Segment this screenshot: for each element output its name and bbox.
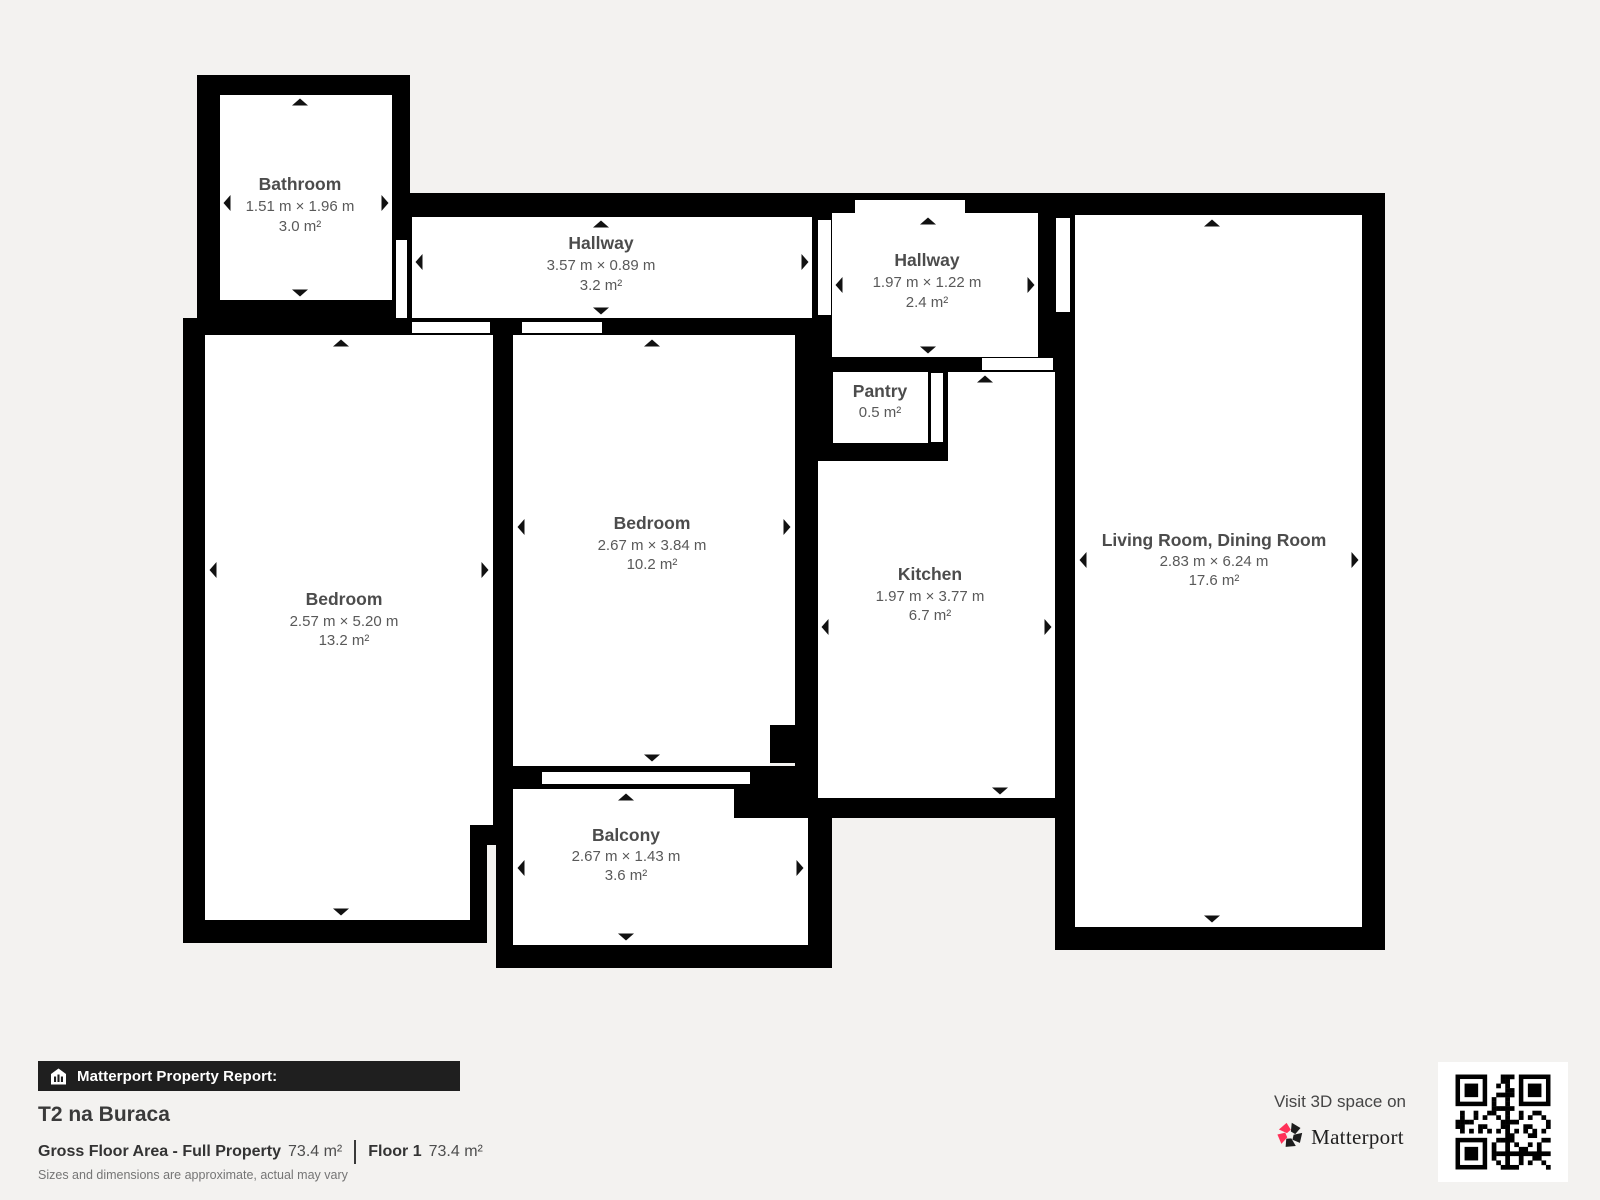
room-dimensions: 1.97 m × 1.22 m	[873, 274, 982, 291]
room-name: Bedroom	[306, 589, 383, 609]
room-dimensions: 2.57 m × 5.20 m	[290, 613, 399, 630]
room-area: 17.6 m²	[1189, 572, 1240, 589]
wall	[470, 825, 496, 845]
room-area: 10.2 m²	[627, 556, 678, 573]
wall	[493, 318, 513, 845]
room-area: 3.2 m²	[580, 277, 623, 294]
room-area: 2.4 m²	[906, 294, 949, 311]
promo-block: Visit 3D space on Matterport	[1255, 1092, 1425, 1154]
room-area: 13.2 m²	[319, 632, 370, 649]
room-name: Bathroom	[259, 174, 342, 194]
matterport-logo-icon	[1276, 1121, 1304, 1154]
room-area: 3.0 m²	[279, 218, 322, 235]
room-area: 3.6 m²	[605, 867, 648, 884]
matterport-wordmark: Matterport	[1311, 1125, 1404, 1150]
room-area: 0.5 m²	[859, 404, 902, 421]
wall	[496, 945, 832, 968]
window-opening	[542, 772, 750, 784]
room-name: Bedroom	[614, 513, 691, 533]
room-dimensions: 1.51 m × 1.96 m	[246, 198, 355, 215]
room-dimensions: 2.67 m × 1.43 m	[572, 848, 681, 865]
room-area: 6.7 m²	[909, 607, 952, 624]
door-opening	[855, 200, 965, 213]
door-opening	[931, 373, 943, 442]
qr-code	[1451, 1070, 1555, 1174]
room-dimensions: 3.57 m × 0.89 m	[547, 257, 656, 274]
room-name: Kitchen	[898, 564, 962, 584]
visit-3d-text: Visit 3D space on	[1255, 1092, 1425, 1112]
room-name: Living Room, Dining Room	[1102, 530, 1327, 550]
disclaimer-text: Sizes and dimensions are approximate, ac…	[38, 1168, 348, 1182]
property-title: T2 na Buraca	[38, 1103, 170, 1127]
wall	[183, 920, 487, 943]
wall	[770, 725, 818, 763]
matterport-brand: Matterport	[1255, 1121, 1425, 1154]
gross-floor-area-value: 73.4 m²	[288, 1143, 342, 1161]
wall	[1058, 927, 1385, 950]
door-opening	[818, 220, 831, 315]
wall	[1037, 193, 1385, 215]
floorplan: Bathroom 1.51 m × 1.96 m 3.0 m² Hallway …	[0, 0, 1600, 1010]
wall	[808, 798, 832, 968]
door-opening	[982, 358, 1053, 370]
wall	[496, 766, 513, 968]
property-report-page: Bathroom 1.51 m × 1.96 m 3.0 m² Hallway …	[0, 0, 1600, 1200]
wall	[734, 789, 832, 818]
wall	[1055, 372, 1075, 950]
room-name: Balcony	[592, 825, 660, 845]
room-name: Hallway	[894, 250, 959, 270]
room-dimensions: 2.83 m × 6.24 m	[1160, 553, 1269, 570]
house-icon	[50, 1068, 67, 1085]
door-opening	[412, 322, 490, 333]
wall	[183, 318, 205, 943]
room-dimensions: 2.67 m × 3.84 m	[598, 537, 707, 554]
room-name: Hallway	[568, 233, 633, 253]
report-header-bar: Matterport Property Report:	[38, 1061, 460, 1091]
divider	[354, 1140, 356, 1164]
qr-card	[1438, 1062, 1568, 1182]
door-opening	[522, 322, 602, 333]
floor-label: Floor 1	[368, 1143, 421, 1161]
report-bar-label: Matterport Property Report:	[77, 1068, 277, 1085]
room-name: Pantry	[853, 381, 908, 401]
wall	[1362, 193, 1385, 950]
door-opening	[1056, 218, 1070, 312]
floor-value: 73.4 m²	[429, 1143, 483, 1161]
floor-area-line: Gross Floor Area - Full Property 73.4 m²…	[38, 1140, 483, 1164]
door-opening	[396, 240, 407, 318]
room-living-room	[1075, 215, 1362, 927]
room-dimensions: 1.97 m × 3.77 m	[876, 588, 985, 605]
gross-floor-area-label: Gross Floor Area - Full Property	[38, 1143, 281, 1161]
